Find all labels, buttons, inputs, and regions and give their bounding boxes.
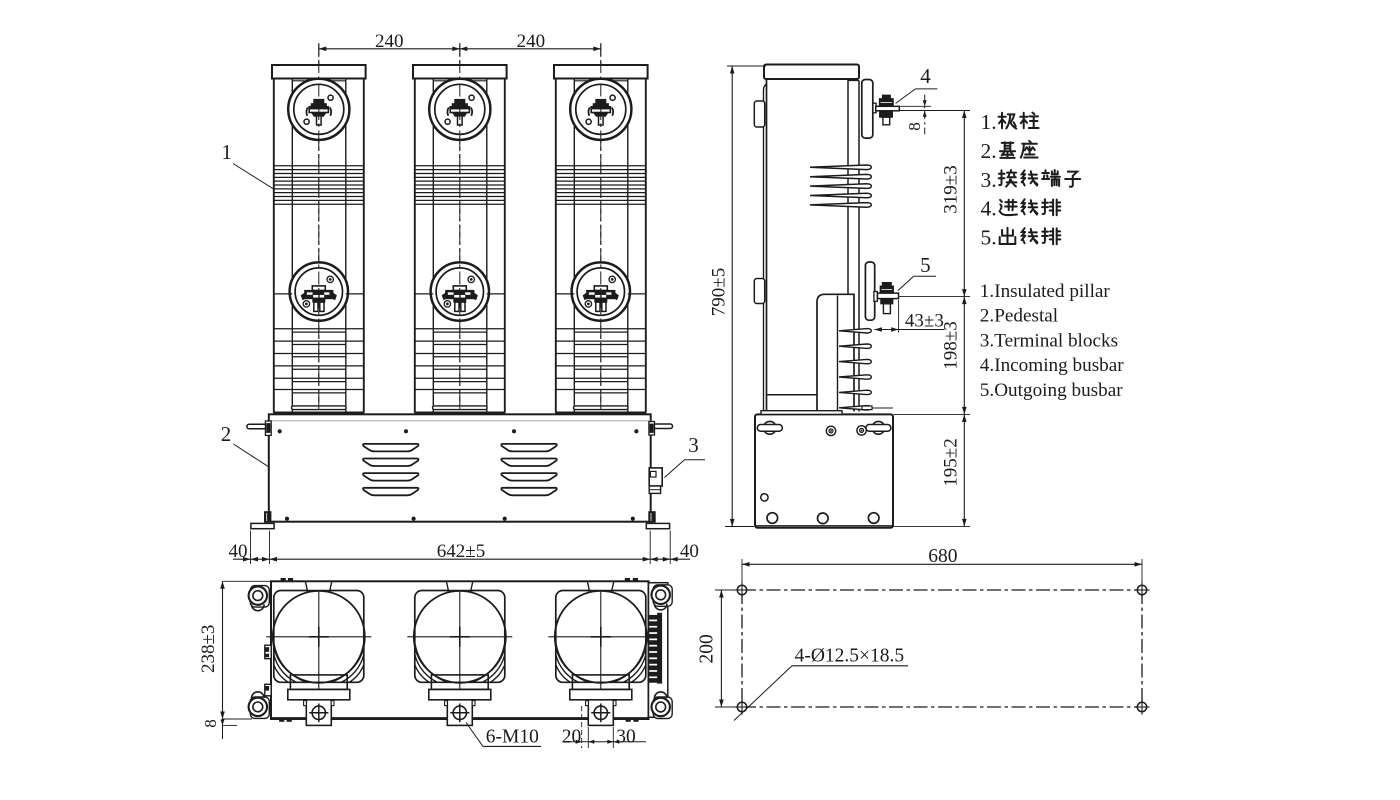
svg-text:20: 20 xyxy=(562,727,582,748)
svg-text:5.: 5. xyxy=(981,226,997,250)
svg-text:1.Insulated pillar: 1.Insulated pillar xyxy=(980,281,1111,302)
svg-text:200: 200 xyxy=(697,634,718,663)
svg-text:4.: 4. xyxy=(981,197,997,221)
svg-text:8: 8 xyxy=(905,122,924,131)
svg-text:6-M10: 6-M10 xyxy=(486,727,539,748)
svg-text:195±2: 195±2 xyxy=(940,438,961,486)
svg-text:1.: 1. xyxy=(981,110,997,134)
svg-text:5.Outgoing busbar: 5.Outgoing busbar xyxy=(980,380,1123,401)
svg-text:2: 2 xyxy=(221,422,232,446)
svg-text:3.: 3. xyxy=(981,168,997,192)
svg-text:4.Incoming busbar: 4.Incoming busbar xyxy=(980,355,1124,376)
svg-text:3.Terminal blocks: 3.Terminal blocks xyxy=(980,330,1118,351)
svg-text:1: 1 xyxy=(221,140,232,164)
svg-text:5: 5 xyxy=(920,253,931,277)
svg-text:30: 30 xyxy=(616,727,636,748)
svg-text:198±3: 198±3 xyxy=(940,321,961,369)
svg-text:2.: 2. xyxy=(981,139,997,163)
svg-text:319±3: 319±3 xyxy=(940,165,961,213)
svg-text:4-Ø12.5×18.5: 4-Ø12.5×18.5 xyxy=(795,646,905,667)
svg-text:790±5: 790±5 xyxy=(709,268,730,316)
svg-text:4: 4 xyxy=(920,64,931,88)
svg-text:8: 8 xyxy=(201,719,220,728)
svg-text:238±3: 238±3 xyxy=(198,625,219,673)
svg-text:43±3: 43±3 xyxy=(905,311,944,332)
svg-text:2.Pedestal: 2.Pedestal xyxy=(980,306,1058,327)
svg-text:680: 680 xyxy=(928,546,957,567)
svg-text:3: 3 xyxy=(688,433,699,457)
